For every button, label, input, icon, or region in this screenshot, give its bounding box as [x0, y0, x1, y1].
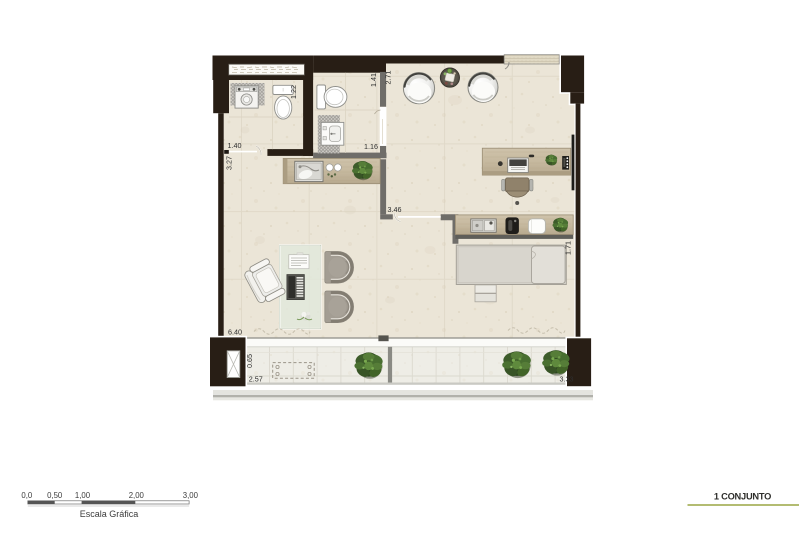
svg-text:1.71: 1.71 [564, 241, 573, 255]
svg-text:2,00: 2,00 [129, 491, 145, 500]
svg-text:2.57: 2.57 [249, 375, 263, 384]
svg-text:1.41: 1.41 [369, 73, 378, 87]
svg-text:2.71: 2.71 [384, 71, 393, 85]
svg-text:0,50: 0,50 [47, 491, 63, 500]
svg-text:6.40: 6.40 [228, 327, 242, 336]
svg-text:Escala Gráfica: Escala Gráfica [80, 509, 139, 519]
svg-text:1.40: 1.40 [228, 141, 242, 150]
svg-text:1,00: 1,00 [75, 491, 91, 500]
svg-text:1 CONJUNTO: 1 CONJUNTO [714, 492, 771, 502]
svg-text:1.22: 1.22 [289, 85, 298, 99]
svg-text:3.33: 3.33 [560, 375, 574, 384]
svg-text:3.46: 3.46 [388, 205, 402, 214]
svg-text:3.27: 3.27 [225, 156, 234, 170]
svg-text:3,00: 3,00 [183, 491, 199, 500]
svg-text:1.16: 1.16 [364, 142, 378, 151]
svg-text:0,0: 0,0 [21, 491, 33, 500]
svg-text:0.65: 0.65 [245, 354, 254, 368]
